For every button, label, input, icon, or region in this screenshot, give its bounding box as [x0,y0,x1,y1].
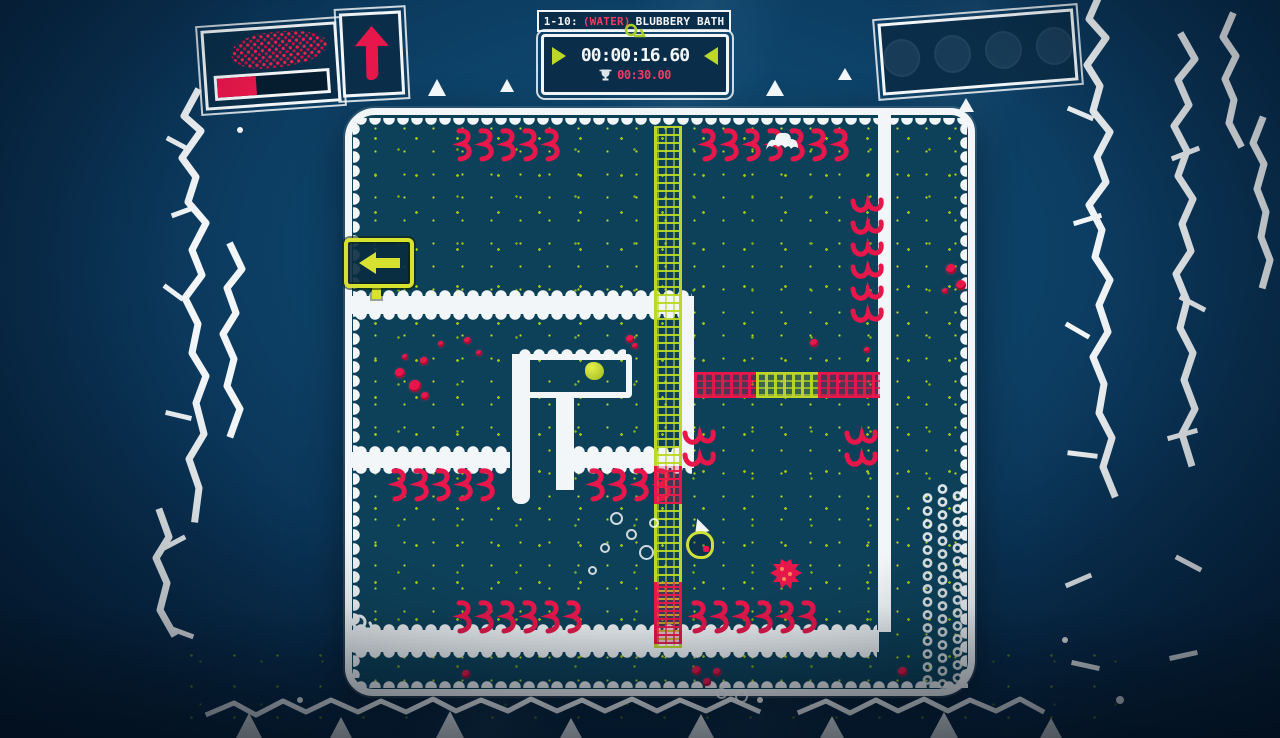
level-title-bar: 1-10: (WATER) BLUBBERY BATH [537,10,731,32]
berry [898,667,907,676]
mid-ledge-left [352,452,510,468]
bubble [735,690,748,703]
bubble [588,566,597,575]
vine-ladder [654,126,682,648]
berry [626,335,634,343]
berry [810,339,818,347]
bubble-chain [922,492,933,688]
berry [409,380,421,392]
berry [464,337,471,344]
maze-tunnel-box [512,354,632,398]
game-screen: 1-10: (WATER) BLUBBERY BATH 00:00:16.60 [0,0,1280,738]
red-dither-blob-icon [229,26,328,72]
timer-panel: 00:00:16.60 00:30.00 [541,34,729,95]
world-tag: (WATER) [583,15,631,28]
floor-spike-row [690,600,822,634]
green-jelly-item [585,362,604,380]
urchin-enemy [768,558,804,590]
hazard-segment [818,372,880,398]
capacity-meter [214,68,331,101]
safe-segment [756,372,818,398]
berry [438,341,444,347]
floor-spike-row [455,600,587,634]
berry [420,357,428,365]
snail-decoration [350,612,376,632]
berry [632,343,638,349]
berry [956,280,966,290]
hanging-spike-row [390,468,500,502]
bubble [716,688,727,699]
berry [864,347,870,353]
berry [692,666,701,675]
slot [1034,26,1074,67]
ceiling-spike-row [455,128,565,162]
berry [421,392,429,400]
slot [882,38,922,79]
wall-spike-strip [842,428,878,472]
left-wall-scallops [353,122,362,678]
wall-spike-strip [680,428,716,472]
bubble [626,529,637,540]
snail-icon [623,22,647,39]
boost-panel [339,10,405,97]
crab-decoration [762,128,798,154]
player-character [686,520,716,558]
berry [946,264,956,274]
berry [395,368,405,378]
left-arrow-sign-icon [359,252,400,274]
direction-sign [344,238,414,288]
slot-row [877,8,1078,95]
bubble-chain [937,483,948,691]
wall-spike-strip [848,196,884,328]
bubble-chain [952,490,963,688]
capacity-panel [200,21,341,110]
maze-column-left [512,354,530,504]
berry [402,354,408,360]
hazard-segment [694,372,756,398]
berry [942,288,948,294]
bubble [639,545,654,560]
slot [933,34,973,75]
upper-ledge [352,296,694,314]
ladder-hazard-segment [654,582,682,644]
level-number: 1-10: [544,15,578,28]
timer-current: 00:00:16.60 [581,45,689,66]
timer-target: 00:30.00 [617,68,671,82]
player-dot [703,546,709,552]
floor-scallops [354,679,968,688]
ladder-hazard-segment [654,466,682,504]
trophy-icon [599,68,612,82]
next-triangle-icon[interactable] [704,47,718,65]
slot [983,30,1023,71]
hud-meter-fill [217,76,257,98]
prev-triangle-icon[interactable] [552,47,566,65]
level-name: BLUBBERY BATH [636,15,725,28]
berry [462,670,470,678]
bubble [649,518,659,528]
berry [476,350,482,356]
bubble [610,512,623,525]
bubble [600,543,610,553]
berry [713,668,721,676]
berry [703,678,711,686]
up-arrow-icon [355,26,390,83]
horizontal-bridge [694,372,880,398]
player-body [686,531,714,559]
